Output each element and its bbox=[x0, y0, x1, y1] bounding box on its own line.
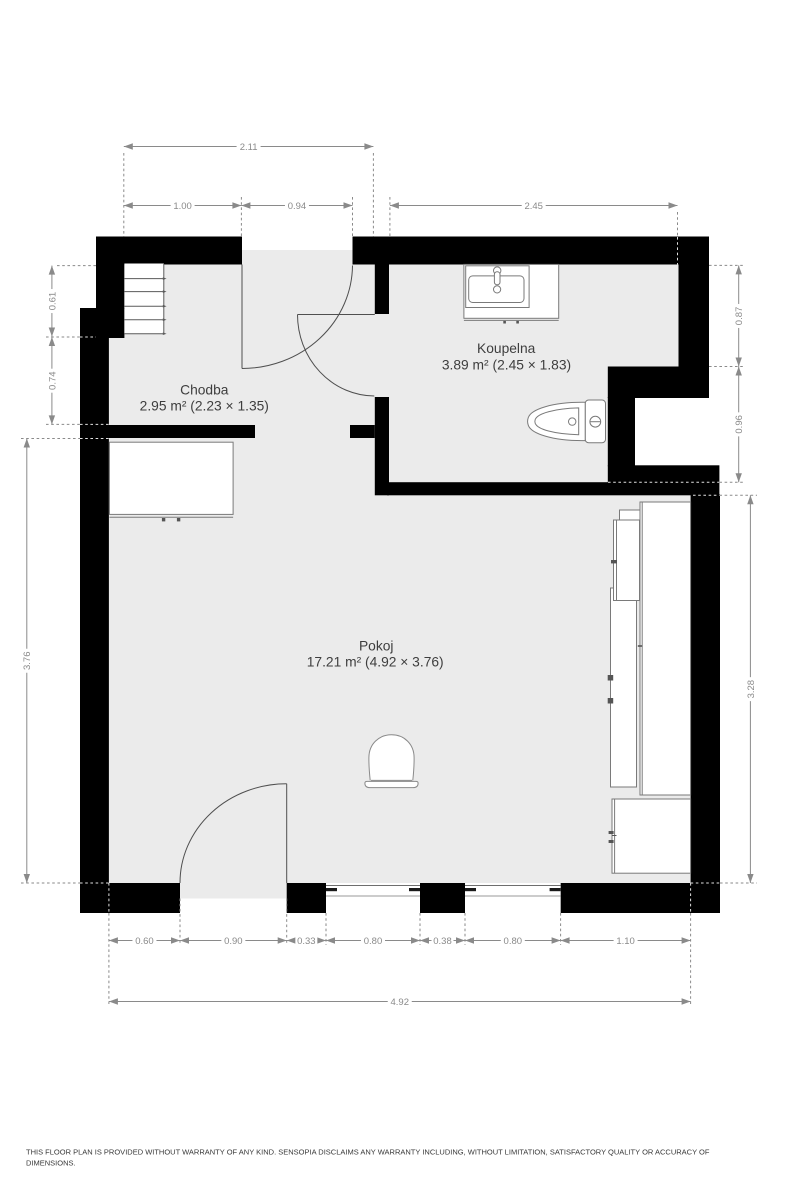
svg-text:Pokoj: Pokoj bbox=[359, 638, 394, 653]
svg-text:4.92: 4.92 bbox=[391, 997, 410, 1008]
svg-text:DIMENSIONS.: DIMENSIONS. bbox=[26, 1159, 76, 1168]
svg-text:2.45: 2.45 bbox=[524, 201, 543, 212]
svg-text:17.21 m² (4.92 × 3.76): 17.21 m² (4.92 × 3.76) bbox=[307, 655, 444, 670]
svg-text:0.33: 0.33 bbox=[297, 936, 316, 947]
svg-text:0.96: 0.96 bbox=[734, 415, 745, 434]
svg-text:0.61: 0.61 bbox=[47, 292, 58, 311]
svg-text:1.10: 1.10 bbox=[616, 936, 635, 947]
svg-text:0.38: 0.38 bbox=[433, 936, 452, 947]
svg-text:3.28: 3.28 bbox=[746, 680, 757, 699]
svg-text:0.80: 0.80 bbox=[504, 936, 523, 947]
svg-text:1.00: 1.00 bbox=[173, 201, 192, 212]
svg-text:Koupelna: Koupelna bbox=[477, 341, 536, 356]
svg-text:0.60: 0.60 bbox=[135, 936, 154, 947]
svg-text:2.11: 2.11 bbox=[240, 142, 258, 153]
svg-text:0.94: 0.94 bbox=[288, 201, 307, 212]
svg-text:3.76: 3.76 bbox=[22, 652, 33, 671]
svg-text:2.95 m² (2.23 × 1.35): 2.95 m² (2.23 × 1.35) bbox=[140, 399, 269, 414]
svg-text:3.89 m² (2.45 × 1.83): 3.89 m² (2.45 × 1.83) bbox=[442, 358, 571, 373]
svg-text:THIS FLOOR PLAN IS PROVIDED WI: THIS FLOOR PLAN IS PROVIDED WITHOUT WARR… bbox=[26, 1148, 710, 1157]
svg-text:0.90: 0.90 bbox=[224, 936, 243, 947]
svg-text:0.87: 0.87 bbox=[734, 307, 745, 326]
svg-text:0.74: 0.74 bbox=[47, 371, 58, 390]
svg-text:Chodba: Chodba bbox=[180, 382, 229, 397]
svg-text:0.80: 0.80 bbox=[364, 936, 383, 947]
